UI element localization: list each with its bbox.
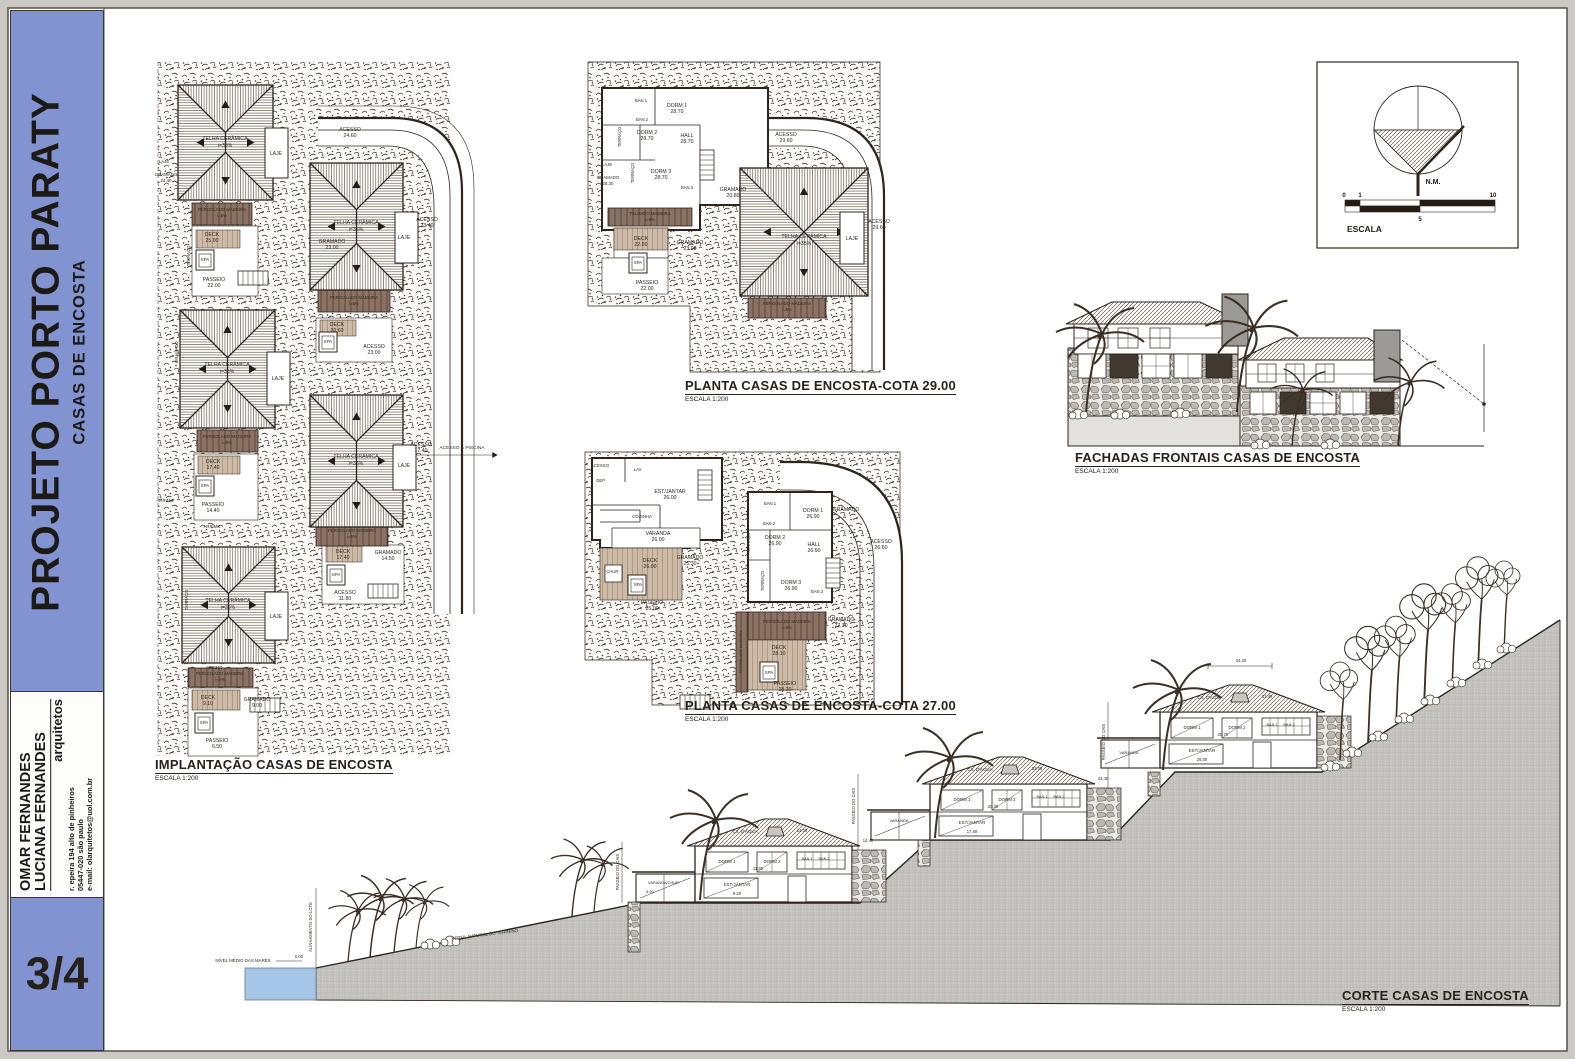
annotation-label: 11.80 [753,866,764,871]
annotation-label: i=35% [218,143,233,149]
annotation-label: LAJE [159,159,170,164]
annotation-label: 28.30 [603,181,615,186]
annotation-label: TELHA CERÂMICA [781,233,827,240]
annotation-label: TERRAÇO [617,126,622,147]
annotation-label: SPA [201,483,210,488]
annotation-label: N.M. [1426,179,1441,186]
annotation-label: PERGOLADO MADEIRA [196,671,244,676]
annotation-label: CX. D'ÁGUA [1198,695,1223,700]
annotation-label: 22.80 [635,242,648,248]
annotation-label: DORM 1 [953,797,971,802]
annotation-label: LAJE [398,235,411,241]
annotation-label: DORM 2 [763,859,781,864]
annotation-label: 26.90 [807,514,820,520]
annotation-label: TELHA CERÂMICA [204,361,250,368]
annotation-label: NÍVEL MÉDIO DAS MARÉS [215,958,270,963]
fachadas-scale: ESCALA 1:200 [1075,468,1360,475]
annotation-label: TELHA CERÂMICA [202,135,248,142]
annotation-label: i=5% [217,213,227,218]
annotation-label: 26.90 [769,541,782,547]
annotation-label: 23.00 [1032,766,1043,771]
planta27-title: PLANTA CASAS DE ENCOSTA-COTA 27.00 [685,698,956,715]
annotation-label: 26.90 [808,548,821,554]
annotation-label: 29.60 [780,138,793,144]
annotation-label: SPA [324,339,333,344]
architect-address: r. epeira 194 alto de pinheiros 05447-02… [67,699,95,891]
annotation-label: PERGOLADO MADEIRA [203,434,251,439]
annotation-label: LAJE [398,463,411,469]
annotation-label: BAN.2 [1284,723,1295,727]
fachadas-title: FACHADAS FRONTAIS CASAS DE ENCOSTA [1075,450,1360,467]
annotation-label: PASSEIO DO CAIS [615,854,620,891]
planta27-title-block: PLANTA CASAS DE ENCOSTA-COTA 27.00 ESCAL… [685,698,956,723]
annotation-label: GRAMADO [174,340,179,362]
annotation-label: 20.80 [727,193,740,199]
annotation-label: 28.70 [641,136,654,142]
annotation-label: PERGOLADO MADEIRA [739,630,743,673]
annotation-label: i=35% [220,369,235,375]
architects-rotated: OMAR FERNANDES LUCIANA FERNANDES arquite… [19,699,95,891]
scanned-sheet: TELHA CERÂMICAi=35%TELHA CERÂMICAi=35%TE… [0,0,1575,1059]
annotation-label: ARRIMO [206,665,223,670]
annotation-label: i=5% [215,677,225,682]
corte-title-block: CORTE CASAS DE ENCOSTA ESCALA 1:200 [1342,988,1529,1013]
annotation-label: 22.00 [208,283,221,289]
annotation-label: 17.40 [415,448,428,454]
annotation-label: BAN.1 [635,98,648,103]
annotation-label: PASSEIO DO CAIS [1101,724,1106,761]
annotation-label: 31.40 [1262,694,1273,699]
annotation-label: BAN.2 [1054,795,1065,799]
annotation-label: ARRIMO [157,498,174,503]
annotation-label: 25.30 [684,561,697,567]
annotation-label: SPA [332,572,341,577]
annotation-label: 22.00 [641,286,654,292]
annotation-label: 28.20 [779,687,792,693]
annotation-label: 0.00 [295,954,304,959]
annotation-label: 23.00 [368,350,381,356]
annotation-label: SPA [634,260,643,265]
annotation-label: ACESSO [591,463,610,468]
annotation-label: PERGOLADO MADEIRA [763,301,811,306]
annotation-label: ESCALA [1347,224,1382,234]
annotation-label: SPA [200,720,209,725]
annotation-label: 9.10 [203,701,213,707]
address-line-2: 05447-020 são paulo [76,699,85,891]
annotation-label: i=35% [221,605,236,611]
annotation-label: 27.30 [835,623,848,629]
annotation-label: LAJE [846,236,859,242]
annotation-label: PERGOLADO MADEIRA [763,619,811,624]
annotation-label: GRAMADO [833,507,860,513]
planta27-scale: ESCALA 1:200 [685,716,956,723]
planta29-title-block: PLANTA CASAS DE ENCOSTA-COTA 29.00 ESCAL… [685,378,956,403]
annotation-label: BAN.1 [1037,795,1048,799]
annotation-label: BAN.2 [819,857,830,861]
annotation-label: DORM 1 [1183,725,1201,730]
page-number-box: 3/4 [10,897,104,1051]
annotation-label: 25.00 [206,238,219,244]
annotation-label: LAV. [634,467,642,472]
annotation-label: 14.40 [863,838,874,843]
annotation-label: 28.70 [655,175,668,181]
annotation-label: VARANDA/CHUR. [648,880,680,885]
annotation-label: 17.80 [967,829,978,834]
corte-title: CORTE CASAS DE ENCOSTA [1342,988,1529,1005]
annotation-label: 9.00 [252,703,262,709]
annotation-label: BAN.1 [1267,723,1278,727]
annotation-label: ARRIMO [204,524,221,529]
annotation-label: TERRAÇO [630,162,635,183]
annotation-label: BAN.1 [764,501,777,506]
annotation-label: i=35% [349,227,364,233]
annotation-label: 28.70 [681,139,694,145]
annotation-label: 14.40 [207,508,220,514]
annotation-label: 23.40 [421,223,434,229]
annotation-label: 26.00 [652,537,665,543]
annotation-label: i=5% [645,217,655,222]
annotation-label: 20.60 [331,328,344,334]
annotation-label: LAJE [272,376,285,382]
annotation-label: i=5% [222,440,232,445]
annotation-label: 9.20 [733,891,742,896]
annotation-label: COZINHA [632,514,652,519]
annotation-label: BAN.1 [802,857,813,861]
annotation-label: 28.70 [671,109,684,115]
address-line-1: r. epeira 194 alto de pinheiros [67,699,76,891]
project-subtitle: CASAS DE ENCOSTA [71,92,90,612]
annotation-label: TERRAÇO [746,532,751,553]
annotation-label: LAJE [602,162,613,167]
annotation-label: 26.90 [785,586,798,592]
architect-name-1: OMAR FERNANDES [19,699,34,891]
annotation-label: PASSEIO DO CAIS [851,788,856,825]
implantacao-scale: ESCALA 1:200 [155,775,393,782]
annotation-label: DORM 2 [1228,725,1246,730]
annotation-label: LAJE [270,151,283,157]
fachadas-title-block: FACHADAS FRONTAIS CASAS DE ENCOSTA ESCAL… [1075,450,1360,475]
annotation-label: EST/JANTAR [959,820,986,825]
annotation-label: 17.40 [337,555,350,561]
annotation-label: i=5% [347,534,357,539]
annotation-label: 25.00 [646,606,659,612]
annotation-label: EST/JANTAR [1189,748,1216,753]
annotation-label: 26.60 [875,545,888,551]
annotation-label: 28.70 [1218,732,1229,737]
annotation-label: DORM 2 [998,797,1016,802]
planta29-title: PLANTA CASAS DE ENCOSTA-COTA 29.00 [685,378,956,395]
page-number: 3/4 [26,948,89,1000]
annotation-label: 24.60 [344,133,357,139]
annotation-label: 11.80 [339,596,352,602]
annotation-label: i=5% [782,625,792,630]
annotation-label: TELHA CERÂMICA [205,597,251,604]
annotation-label: PERGOLADO MADEIRA [330,295,378,300]
annotation-label: 26.00 [664,495,677,501]
annotation-label: DEP. [596,478,605,483]
architects-box: OMAR FERNANDES LUCIANA FERNANDES arquite… [10,691,104,899]
annotation-label: i=5% [349,301,359,306]
address-line-3: e-mail: olarquitetos@uol.com.br [86,699,95,891]
annotation-label: GRAMADO [597,175,620,180]
annotation-label: EST/JANTAR [724,882,751,887]
annotation-label: BAN.3 [681,185,694,190]
annotation-label: 23.40 [1098,776,1109,781]
annotation-label: CX. D'ÁGUA [968,767,993,772]
annotation-label: 6.50 [212,744,222,750]
architect-name-2: LUCIANA FERNANDES [34,699,51,891]
planta29-scale: ESCALA 1:200 [685,396,956,403]
annotation-label: CHUR. [606,569,619,574]
annotation-label: SPA [201,257,210,262]
annotation-label: i=5% [782,307,792,312]
annotation-label: PERGOLADO MADEIRA [328,528,376,533]
drawing-sheet-svg: TELHA CERÂMICAi=35%TELHA CERÂMICAi=35%TE… [0,0,1575,1059]
annotation-label: 23.00 [684,246,697,252]
project-title-rotated: PROJETO PORTO PARATY CASAS DE ENCOSTA [25,92,90,612]
corte-scale: ESCALA 1:200 [1342,1006,1529,1013]
annotation-label: 26.00 [644,564,657,570]
annotation-label: 20.00 [988,804,999,809]
annotation-label: i=35% [797,241,812,247]
annotation-label: 8.50 [646,889,655,894]
annotation-label: 17.40 [207,465,220,471]
annotation-label: SPA [634,582,643,587]
annotation-label: 29.60 [873,225,886,231]
annotation-label: BAN.3 [811,589,824,594]
annotation-label: 26.00 [1197,757,1208,762]
annotation-label: ACESSO À PISCINA [439,444,485,451]
annotation-label: i=35% [349,461,364,467]
annotation-label: ALINHAMENTO DO LOTE [308,902,313,952]
annotation-label: 34.20 [1236,658,1247,663]
annotation-label: GRAMADO [155,172,178,177]
annotation-label: LAJE [270,614,283,620]
annotation-label: VARANDA [889,818,908,823]
architect-profession: arquitetos [51,699,65,891]
annotation-label: 24.40 [161,178,173,183]
implantacao-title: IMPLANTAÇÃO CASAS DE ENCOSTA [155,757,393,774]
annotation-label: BAN.2 [763,521,776,526]
annotation-label: 28.10 [773,651,786,657]
implantacao-plan [158,62,498,756]
scale-bar [1345,200,1495,212]
annotation-label: TELHA CERÂMICA [333,219,379,226]
annotation-label: 14.50 [382,556,395,562]
annotation-label: TERRAÇO [760,570,765,591]
annotation-label: CX. D'ÁGUA [733,829,758,834]
annotation-label: PERGOLADO MADEIRA [198,207,246,212]
annotation-label: 23.00 [326,245,339,251]
annotation-label: SPA [765,670,774,675]
annotation-label: DORM 1 [718,859,736,864]
annotation-label: TELHADO MADEIRA [629,211,670,216]
annotation-label: TELHA CERÂMICA [333,453,379,460]
annotation-label: 10 [1490,193,1497,199]
implantacao-title-block: IMPLANTAÇÃO CASAS DE ENCOSTA ESCALA 1:20… [155,757,393,782]
annotation-label: 14.00 [797,828,808,833]
annotation-label: TERRAÇO [184,589,189,610]
annotation-label: BAN.2 [636,117,649,122]
project-title: PROJETO PORTO PARATY [25,92,69,612]
annotation-label: VARANDA [1119,750,1138,755]
annotation-label: TERRAÇO [186,245,191,266]
project-title-band: PROJETO PORTO PARATY CASAS DE ENCOSTA [10,10,104,693]
